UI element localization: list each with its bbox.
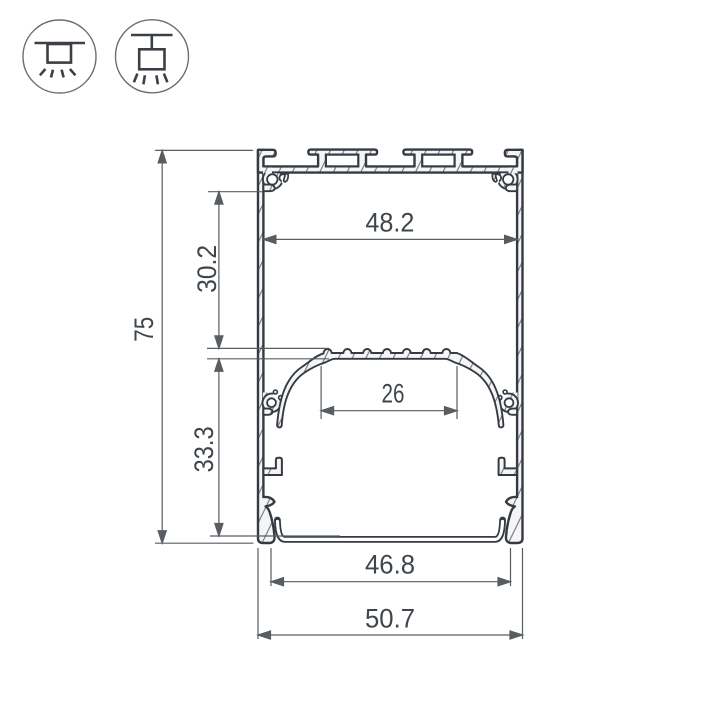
svg-text:50.7: 50.7 — [365, 602, 415, 633]
svg-text:26: 26 — [382, 377, 405, 408]
svg-text:33.3: 33.3 — [188, 426, 219, 472]
svg-text:75: 75 — [128, 317, 159, 342]
svg-text:48.2: 48.2 — [365, 206, 414, 237]
svg-text:46.8: 46.8 — [365, 548, 415, 579]
svg-text:30.2: 30.2 — [191, 245, 222, 293]
